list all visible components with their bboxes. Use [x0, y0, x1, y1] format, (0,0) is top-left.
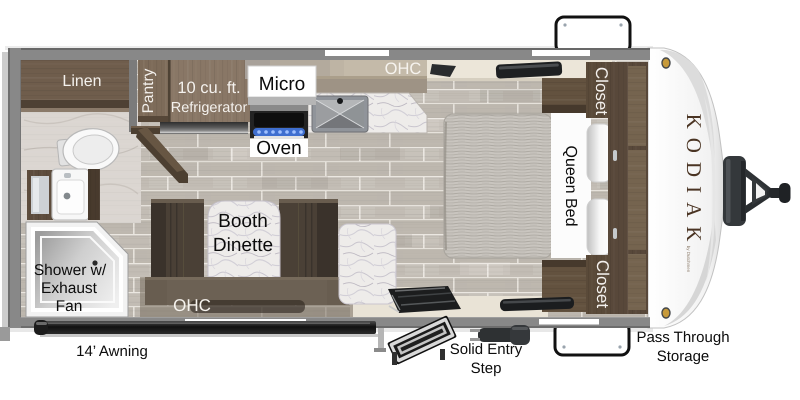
svg-text:Exhaust: Exhaust	[41, 280, 98, 297]
svg-text:Pass Through: Pass Through	[636, 329, 729, 346]
svg-text:OHC: OHC	[173, 296, 211, 315]
svg-text:Queen Bed: Queen Bed	[562, 146, 579, 227]
svg-text:Shower w/: Shower w/	[34, 262, 107, 279]
svg-text:14’ Awning: 14’ Awning	[76, 343, 148, 360]
svg-text:Oven: Oven	[256, 138, 301, 159]
svg-text:by Dutchmen: by Dutchmen	[686, 246, 691, 273]
svg-text:Booth: Booth	[218, 211, 268, 232]
svg-text:Step: Step	[471, 360, 502, 377]
svg-text:Closet: Closet	[593, 260, 612, 308]
svg-text:Pantry: Pantry	[140, 68, 157, 113]
svg-text:10 cu. ft.: 10 cu. ft.	[177, 79, 240, 97]
svg-text:Closet: Closet	[592, 67, 611, 115]
svg-text:Micro: Micro	[259, 74, 305, 95]
svg-text:OHC: OHC	[385, 60, 422, 78]
svg-text:Refrigerator: Refrigerator	[171, 100, 248, 116]
svg-text:Storage: Storage	[657, 348, 710, 365]
svg-text:Dinette: Dinette	[213, 235, 273, 256]
svg-text:KODIAK: KODIAK	[682, 114, 706, 251]
svg-text:Solid Entry: Solid Entry	[450, 341, 523, 358]
svg-text:Linen: Linen	[62, 73, 101, 90]
svg-text:Fan: Fan	[56, 298, 83, 315]
